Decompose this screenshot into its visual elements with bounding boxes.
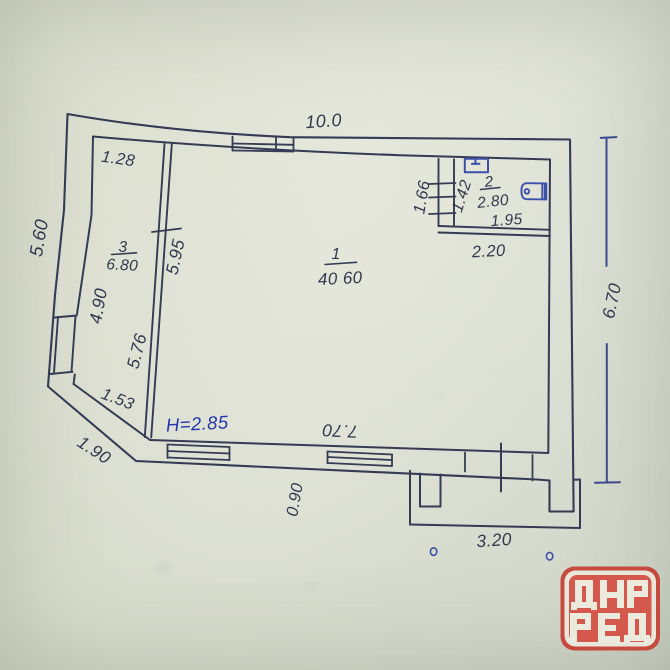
svg-text:5.60: 5.60 [25, 217, 52, 258]
svg-text:1.95: 1.95 [490, 211, 523, 230]
svg-text:40 60: 40 60 [317, 268, 363, 289]
svg-text:3.20: 3.20 [476, 529, 513, 551]
svg-text:6.70: 6.70 [598, 281, 625, 320]
svg-text:6.80: 6.80 [106, 256, 139, 275]
svg-text:2.20: 2.20 [470, 242, 506, 262]
svg-text:1.53: 1.53 [99, 385, 137, 414]
svg-text:4.90: 4.90 [85, 287, 111, 326]
svg-text:5.76: 5.76 [123, 331, 151, 370]
svg-text:1: 1 [331, 246, 340, 263]
svg-text:1.28: 1.28 [100, 148, 136, 171]
svg-text:1.66: 1.66 [410, 179, 434, 216]
svg-text:0.90: 0.90 [283, 481, 307, 518]
svg-text:10.0: 10.0 [305, 110, 343, 133]
svg-text:H=2.85: H=2.85 [165, 411, 229, 435]
svg-text:2.80: 2.80 [475, 192, 509, 212]
svg-text:7.70: 7.70 [322, 420, 359, 442]
